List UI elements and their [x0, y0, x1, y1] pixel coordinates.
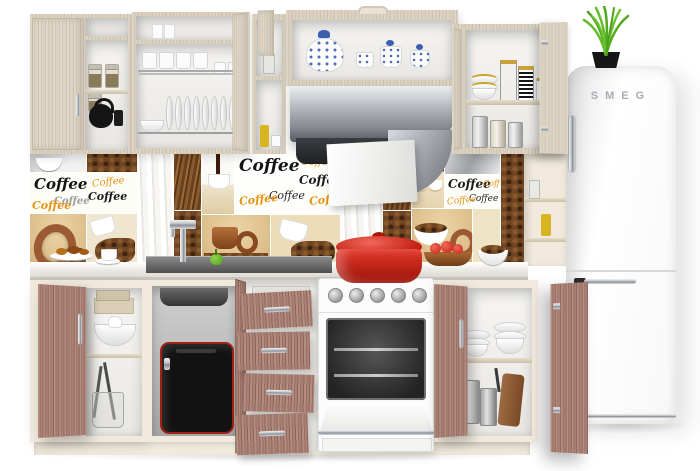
patterned-canister: [500, 60, 517, 102]
drinking-glass: [263, 54, 275, 74]
drawer-handle: [266, 390, 292, 396]
coffee-text: Coffee: [92, 176, 125, 189]
backsplash-tile-cinnamon: [174, 148, 201, 210]
drawer-unit: [244, 280, 318, 452]
casserole-body: [336, 249, 422, 283]
teapot: [306, 38, 344, 72]
drawer-handle: [261, 348, 287, 353]
coffee-text: Coffee: [34, 177, 87, 192]
pastry: [56, 248, 67, 255]
toaster-slot: [176, 349, 216, 353]
door-handle: [78, 314, 82, 345]
wire-rail: [138, 132, 240, 134]
white-bowl: [472, 88, 496, 100]
fridge-brand: SMEG: [566, 90, 676, 102]
coffee-text: Coffee: [32, 200, 71, 211]
kitchen-scene: Coffee Coffee Coffee Coffee Coffee Coffe…: [0, 0, 700, 471]
metal-jar: [472, 116, 488, 148]
door-hinge: [553, 303, 560, 309]
pastry: [79, 249, 89, 255]
door-handle: [76, 94, 80, 116]
sink-bowl-underside: [160, 286, 228, 306]
green-pepper-stem: [215, 249, 217, 255]
cabinet-interior: [152, 286, 236, 436]
faucet: [168, 220, 198, 262]
door-hinge: [541, 40, 548, 45]
cabinet-interior: [292, 20, 452, 80]
fridge-upper-door-handle: [569, 116, 575, 172]
open-cabinet-door: [539, 22, 568, 154]
stove-knob: [328, 288, 343, 303]
toaster: [160, 342, 234, 434]
shelf-board: [86, 90, 128, 94]
coffee-text: Coffee: [239, 192, 279, 207]
faucet-pipe: [180, 228, 186, 262]
door-handle: [459, 319, 463, 348]
drawer-handle: [259, 431, 285, 437]
coffee-text: Coffee: [88, 191, 127, 202]
wheatgrass-plant: [574, 6, 638, 56]
oil-bottle: [260, 125, 269, 147]
storage-box: [96, 290, 130, 301]
glass-jar: [105, 64, 119, 88]
white-bowl: [496, 338, 524, 354]
stove-knob: [391, 288, 406, 303]
fridge-lower-door-handle: [584, 279, 636, 284]
wire-shelf: [138, 70, 240, 72]
black-kettle-handle: [94, 98, 114, 113]
upper-cubby: [86, 18, 128, 36]
plate: [184, 96, 191, 130]
oven-door-handle: [318, 430, 434, 435]
faucet-head: [170, 220, 196, 229]
toaster-lever: [164, 358, 170, 370]
plate: [202, 96, 209, 130]
cabinet-interior: [86, 40, 128, 150]
plate-rack: [166, 96, 238, 135]
drawer-front: [235, 413, 308, 455]
stove-panel-line: [318, 312, 434, 313]
open-cabinet-door: [258, 10, 274, 56]
dark-berries: [481, 245, 505, 254]
white-mug: [159, 52, 174, 69]
plate: [220, 96, 227, 130]
sink-cabinet: [146, 280, 242, 442]
pantry-item: [541, 214, 551, 236]
open-cabinet-door-rose: [434, 284, 468, 438]
cutting-board: [497, 373, 524, 427]
oven-cavity: [326, 318, 426, 400]
door-hinge: [541, 127, 548, 132]
upper-cubby: [136, 16, 244, 40]
stove-knob: [349, 288, 364, 303]
stove-knob: [412, 288, 427, 303]
photo-tipped-cup: [277, 218, 309, 244]
drawer-front: [241, 290, 313, 330]
plate: [193, 96, 200, 130]
white-cup: [214, 62, 226, 74]
coffee-cup: [101, 249, 117, 261]
white-pestle: [108, 316, 122, 328]
teapot-lid: [318, 30, 330, 38]
backsplash-tile-text-1: Coffee Coffee Coffee Coffee Coffee: [30, 173, 137, 213]
white-canister: [152, 24, 163, 39]
open-cabinet-door: [454, 28, 462, 150]
backsplash-tile-coffee-pour: [202, 148, 234, 214]
sugar-bowl: [380, 46, 402, 68]
green-pepper: [210, 254, 223, 265]
cabinet-interior: [86, 288, 142, 436]
open-cabinet-door-rose: [551, 282, 588, 454]
white-mug: [142, 52, 157, 69]
lower-cabinet-right: [434, 280, 538, 442]
patterned-canister: [518, 66, 534, 102]
photo-tipped-cup: [89, 215, 117, 238]
fridge-door-split: [566, 270, 676, 272]
shelf-board: [86, 354, 142, 358]
upper-cabinet-hood: [286, 10, 458, 86]
hood-filter-paper: [326, 140, 417, 207]
open-cabinet-door: [232, 12, 248, 152]
drawer-front: [238, 331, 311, 370]
white-bowl: [464, 344, 488, 357]
plate: [166, 96, 173, 130]
pantry-item: [529, 180, 540, 199]
wooden-bowl: [424, 252, 472, 266]
tea-cup: [356, 52, 374, 68]
oven-rack: [334, 348, 418, 351]
closed-cabinet-door: [32, 18, 84, 150]
faucet-spout: [170, 229, 175, 237]
tomato: [441, 241, 453, 253]
tomato: [453, 244, 463, 254]
photo-cup-shape: [208, 174, 230, 189]
black-jar: [114, 110, 123, 126]
oven-rack: [334, 374, 418, 377]
cabinet-interior: [256, 80, 282, 150]
plate: [175, 96, 182, 130]
photo-mug-handle: [236, 231, 258, 254]
photo-beans-pile: [415, 223, 447, 233]
metal-jar: [508, 122, 523, 148]
tea-cup-lid: [416, 44, 423, 50]
white-canister: [164, 24, 175, 39]
coffee-text: Coffee: [447, 195, 477, 207]
plate: [211, 96, 218, 130]
stove-bottom-drawer: [322, 438, 432, 452]
stove-knob-row: [328, 288, 433, 308]
photo-brown-mug: [212, 227, 238, 249]
white-cup: [271, 135, 281, 147]
glass-jar: [88, 64, 102, 88]
white-mug: [193, 52, 208, 69]
upper-cabinet-left: [30, 14, 132, 154]
oven-door-open: [320, 402, 432, 432]
metal-canister: [480, 388, 497, 426]
backsplash-tile-text-3: Coffee Coffee Coffee Coffee: [445, 175, 500, 210]
open-cabinet-door-rose: [38, 284, 86, 438]
drawer-handle: [264, 306, 290, 312]
shelf-board: [524, 238, 566, 242]
lift-door-handle: [358, 6, 388, 14]
stove: [318, 278, 434, 452]
drawer-front: [244, 373, 315, 413]
tea-cup: [410, 50, 430, 68]
lower-cabinet-left: [30, 280, 146, 442]
tall-shelf-column: [524, 154, 566, 266]
red-casserole: [336, 236, 422, 286]
white-mug: [176, 52, 191, 69]
cabinet-interior: [136, 44, 244, 148]
coffee-text: Coffee: [239, 158, 300, 175]
door-hinge: [553, 407, 560, 413]
photo-cup-shape: [36, 158, 62, 171]
tomato: [430, 243, 441, 254]
glass-jar: [490, 120, 506, 148]
stove-knob: [370, 288, 385, 303]
glass-vase: [92, 392, 124, 428]
sugar-bowl-lid: [386, 40, 394, 46]
